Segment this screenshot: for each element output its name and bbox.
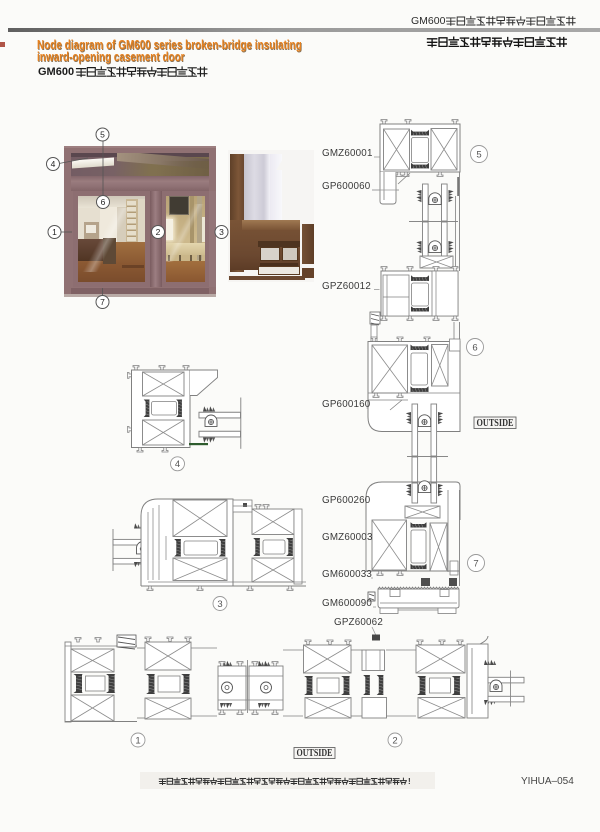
svg-text:1: 1: [135, 735, 140, 746]
svg-text:OUTSIDE: OUTSIDE: [297, 748, 333, 759]
svg-text:3: 3: [217, 599, 222, 610]
svg-text:7: 7: [473, 558, 478, 569]
svg-text:2: 2: [392, 735, 397, 746]
svg-text:3: 3: [219, 227, 224, 237]
svg-text:6: 6: [472, 342, 477, 353]
svg-text:5: 5: [100, 130, 105, 140]
svg-text:2: 2: [156, 227, 161, 237]
svg-text:5: 5: [476, 149, 481, 160]
svg-text:6: 6: [101, 197, 106, 207]
svg-text:OUTSIDE: OUTSIDE: [477, 418, 514, 429]
svg-text:7: 7: [100, 297, 105, 307]
svg-text:4: 4: [175, 459, 180, 470]
svg-text:1: 1: [52, 227, 57, 237]
svg-text:4: 4: [51, 159, 56, 169]
